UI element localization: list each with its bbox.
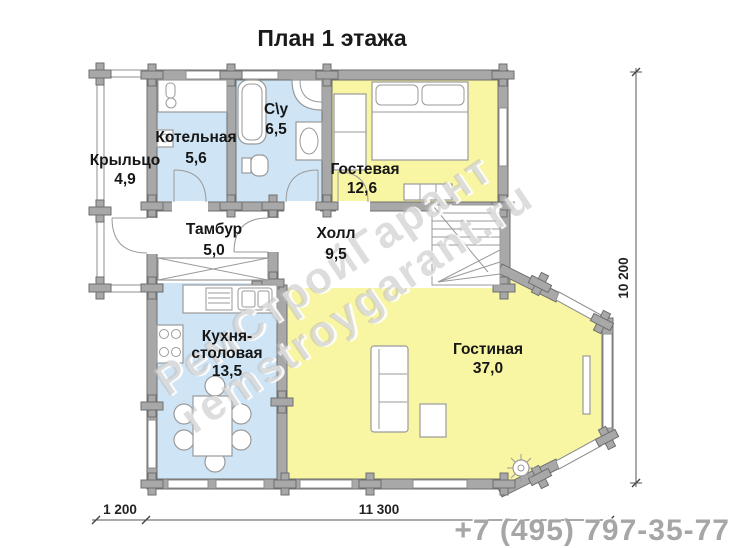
room-label-living: Гостиная bbox=[453, 341, 523, 358]
side-table-icon bbox=[420, 404, 446, 437]
room-label-bathroom: С\у bbox=[264, 101, 289, 118]
room-label-guest: Гостевая bbox=[330, 161, 399, 178]
room-label-kitchen-line2: столовая bbox=[191, 345, 262, 362]
window bbox=[300, 480, 352, 488]
room-area-bathroom: 6,5 bbox=[265, 121, 287, 138]
room-label-tambour: Тамбур bbox=[186, 221, 242, 238]
room-area-guest: 12,6 bbox=[347, 180, 378, 197]
page-title: План 1 этажа bbox=[257, 25, 406, 51]
window bbox=[499, 108, 507, 166]
dimension-label-house: 11 300 bbox=[359, 502, 400, 517]
door-opening-boiler bbox=[172, 201, 208, 212]
closet-icon bbox=[158, 258, 268, 280]
room-area-kitchen: 13,5 bbox=[212, 363, 243, 380]
window bbox=[148, 420, 156, 468]
dimension-label-porch: 1 200 bbox=[103, 502, 137, 517]
door-opening-guest bbox=[336, 201, 370, 212]
room-label-kitchen-line1: Кухня- bbox=[202, 328, 252, 345]
toilet-icon bbox=[242, 155, 268, 176]
boiler-icon bbox=[158, 80, 227, 112]
door-opening-bathroom bbox=[284, 201, 320, 212]
log-cross bbox=[89, 277, 111, 299]
door-porch bbox=[112, 218, 147, 253]
room-area-tambour: 5,0 bbox=[203, 242, 225, 259]
phone-number: +7 (495) 797-35-77 +7 (495) 797-35-77 bbox=[453, 513, 730, 548]
bed-icon bbox=[372, 82, 468, 160]
door-opening-tambour bbox=[267, 218, 279, 252]
window-bay-right bbox=[603, 334, 612, 428]
sofa-icon bbox=[371, 346, 408, 432]
room-area-hall: 9,5 bbox=[325, 246, 347, 263]
window bbox=[168, 480, 208, 488]
room-label-porch: Крыльцо bbox=[90, 152, 161, 169]
washbasin-icon bbox=[296, 122, 322, 160]
log-cross bbox=[89, 200, 111, 222]
room-area-living: 37,0 bbox=[473, 360, 503, 377]
room-label-boiler: Котельная bbox=[155, 129, 236, 146]
room-label-hall: Холл bbox=[317, 225, 356, 242]
window bbox=[413, 480, 467, 488]
radiator-icon bbox=[583, 356, 590, 414]
floor-plan-page: РемСтройГарант РемСтройГарант remstroyga… bbox=[0, 0, 731, 548]
phone-number-text: +7 (495) 797-35-77 bbox=[454, 514, 730, 547]
bathtub-icon bbox=[238, 80, 266, 144]
wardrobe-icon bbox=[334, 94, 366, 170]
room-area-porch: 4,9 bbox=[114, 171, 136, 188]
window bbox=[242, 71, 278, 79]
window bbox=[216, 480, 264, 488]
plant-icon bbox=[507, 454, 535, 482]
log-cross bbox=[89, 63, 111, 85]
floor-plan-svg: РемСтройГарант РемСтройГарант remstroyga… bbox=[0, 0, 731, 548]
door-opening-porch bbox=[146, 218, 158, 254]
porch-wall-left bbox=[97, 70, 104, 292]
wall-bath-guest bbox=[322, 70, 332, 211]
dimension-label-vertical: 10 200 bbox=[616, 257, 631, 298]
room-area-boiler: 5,6 bbox=[185, 150, 207, 167]
